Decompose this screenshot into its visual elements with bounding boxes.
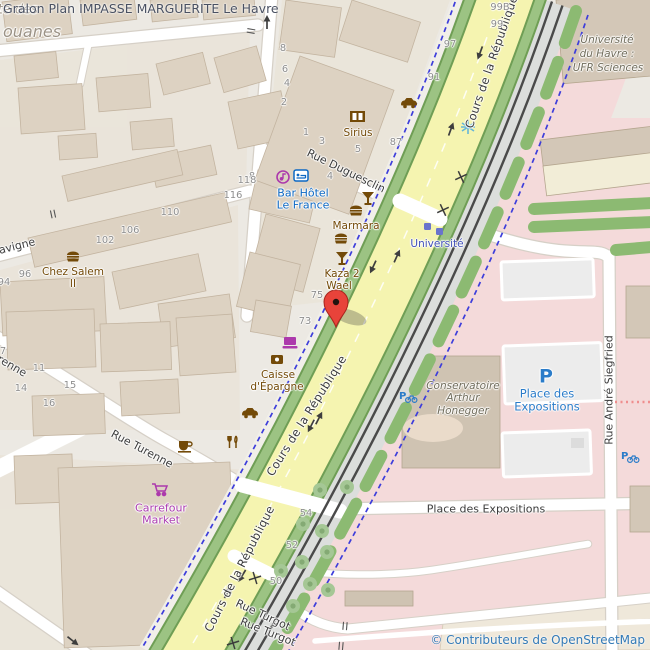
poi-label-douanes-2: ouanes bbox=[3, 24, 61, 40]
house-number: 4 bbox=[327, 172, 333, 182]
house-number: 73 bbox=[299, 317, 311, 327]
poi-label-kaza-1: Kaza 2 bbox=[324, 269, 359, 280]
house-number: 94 bbox=[0, 278, 10, 288]
poi-label-univ-havre-3: UFR Sciences bbox=[573, 63, 644, 74]
house-number: 99B bbox=[490, 3, 509, 13]
house-number: 91 bbox=[428, 73, 440, 83]
house-number: 75 bbox=[311, 291, 323, 301]
street-label-place-des-expositions: Place des Expositions bbox=[427, 504, 545, 515]
poi-label-chez-salem-2: II bbox=[70, 279, 76, 290]
poi-label-kaza-2: Wael bbox=[326, 281, 352, 292]
house-number: 50 bbox=[270, 577, 282, 587]
house-number: 52 bbox=[286, 541, 298, 551]
house-number: 3 bbox=[319, 137, 325, 147]
poi-label-chez-salem-1: Chez Salem bbox=[42, 267, 104, 278]
poi-label-marmara: Marmara bbox=[332, 221, 379, 232]
poi-label-sirius: Sirius bbox=[344, 128, 373, 139]
house-number: 97 bbox=[444, 40, 456, 50]
poi-label-univ-havre-1: Université bbox=[580, 35, 633, 46]
house-number: 6 bbox=[282, 65, 288, 75]
house-number: 102 bbox=[96, 236, 115, 246]
house-number: 8 bbox=[280, 44, 286, 54]
house-number: 15 bbox=[64, 381, 76, 391]
poi-label-bar-hotel-1: Bar Hôtel bbox=[277, 188, 328, 199]
labels-layer: Gralon Plan IMPASSE MARGUERITE Le Havre … bbox=[0, 0, 650, 650]
poi-label-carrefour-2: Market bbox=[142, 515, 180, 526]
house-number: 2 bbox=[281, 98, 287, 108]
house-number: 54 bbox=[300, 509, 312, 519]
house-number: 4 bbox=[284, 79, 290, 89]
house-number: 14 bbox=[15, 384, 27, 394]
street-label-rue-andre-siegfried: Rue André Siegfried bbox=[604, 335, 615, 444]
house-number: 118 bbox=[238, 176, 257, 186]
map-canvas: P P Gralon Plan IMPASSE MARGUERITE Le Ha… bbox=[0, 0, 650, 650]
house-number: 110 bbox=[161, 208, 180, 218]
poi-label-conservatoire-2: Arthur bbox=[446, 393, 479, 404]
poi-label-univ-havre-2: du Havre : bbox=[580, 49, 635, 60]
house-number: 16 bbox=[43, 399, 55, 409]
page-title: Gralon Plan IMPASSE MARGUERITE Le Havre bbox=[3, 1, 279, 16]
house-number: 96 bbox=[19, 270, 31, 280]
parking-label-2: Expositions bbox=[514, 401, 580, 413]
poi-label-caisse-2: d'Épargne bbox=[250, 382, 303, 393]
poi-label-carrefour-1: Carrefour bbox=[135, 503, 187, 514]
poi-label-conservatoire-1: Conservatoire bbox=[426, 381, 500, 392]
poi-label-universite-stop: Université bbox=[410, 239, 463, 250]
house-number: 7 bbox=[0, 347, 6, 357]
street-label-delavigne-partial: avigne bbox=[0, 236, 36, 256]
house-number: 1 bbox=[303, 128, 309, 138]
house-number: 99 bbox=[491, 20, 503, 30]
house-number: 87 bbox=[390, 138, 402, 148]
house-number: 11 bbox=[33, 364, 45, 374]
attribution-link[interactable]: © Contributeurs de OpenStreetMap bbox=[430, 633, 645, 647]
poi-label-bar-hotel-2: Le France bbox=[277, 200, 330, 211]
parking-label-1: Place des bbox=[520, 388, 575, 400]
house-number: 5 bbox=[355, 145, 361, 155]
street-label-rue-turenne: Rue Turenne bbox=[109, 428, 174, 470]
house-number: 116 bbox=[224, 191, 243, 201]
poi-label-conservatoire-3: Honegger bbox=[437, 406, 489, 417]
poi-label-caisse-1: Caisse bbox=[261, 370, 295, 381]
parking-p-label: P bbox=[539, 368, 553, 387]
house-number: 106 bbox=[121, 226, 140, 236]
